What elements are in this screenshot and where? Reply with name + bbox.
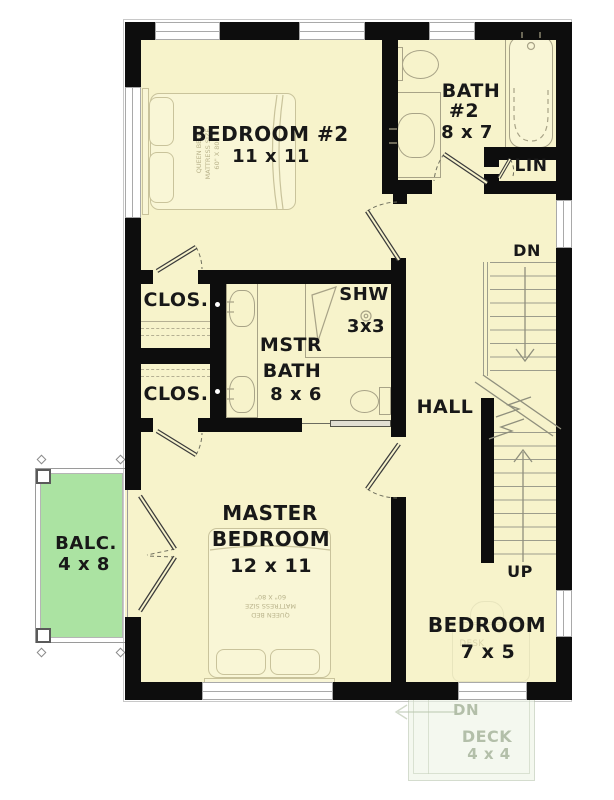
stairs-down-label: DN bbox=[513, 243, 541, 260]
deck-down-arrow bbox=[396, 705, 457, 719]
room-label-bath2: #2 bbox=[449, 102, 479, 122]
tub-faucet-icon bbox=[528, 43, 535, 50]
room-label-master-bath: MSTR bbox=[260, 336, 322, 356]
stair-annotations bbox=[475, 267, 561, 562]
room-dims-deck: 4 x 4 bbox=[467, 747, 511, 763]
stair-break-line bbox=[483, 375, 561, 429]
room-dims-bedroom3: 7 x 5 bbox=[461, 643, 515, 663]
room-label-shower: SHW bbox=[339, 286, 388, 305]
door-arc-closet2 bbox=[196, 433, 202, 455]
sink-faucet-icon bbox=[227, 389, 234, 399]
floor-plan: QUEEN BED MATTRESS SIZE 60" X 80" QUEEN … bbox=[0, 0, 614, 800]
room-dims-master-bedroom: 12 x 11 bbox=[230, 557, 312, 577]
stairs-up-label: UP bbox=[507, 564, 533, 581]
door-arc-closet1 bbox=[196, 247, 202, 269]
room-dims-bedroom2: 11 x 11 bbox=[232, 148, 310, 167]
door-arc-balcony bbox=[147, 549, 175, 555]
shower-head-triangle bbox=[312, 287, 336, 341]
stair-break-zigzag bbox=[489, 419, 524, 439]
room-label-bath2: BATH bbox=[442, 82, 501, 102]
room-dims-bath2: 8 x 7 bbox=[441, 124, 493, 143]
room-label-bedroom2: BEDROOM #2 bbox=[191, 124, 348, 145]
door-arc-linen bbox=[510, 159, 514, 176]
tub-handle-icon bbox=[522, 32, 540, 38]
room-dims-shower: 3x3 bbox=[347, 318, 385, 337]
sink-faucet-icon bbox=[389, 129, 397, 143]
room-dims-master-bath: 8 x 6 bbox=[270, 386, 322, 405]
room-label-master-bedroom: BEDROOM bbox=[212, 529, 330, 550]
room-label-hall: HALL bbox=[417, 398, 474, 418]
room-label-balcony: BALC. bbox=[55, 535, 117, 554]
room-label-closet1: CLOS. bbox=[144, 291, 209, 311]
door-arc-bath2 bbox=[434, 154, 444, 181]
door-arc-master bbox=[367, 489, 397, 498]
room-label-master-bath: BATH bbox=[263, 362, 322, 382]
sink-faucet-icon bbox=[227, 302, 234, 312]
room-label-linen: LIN bbox=[515, 158, 548, 176]
stair-break-line bbox=[475, 382, 553, 436]
door-arc-balcony bbox=[147, 556, 175, 557]
deck-down-label: DN bbox=[453, 703, 479, 719]
tub-inner-dashed bbox=[514, 88, 548, 141]
room-label-deck: DECK bbox=[462, 729, 512, 746]
door-arc-bedroom2 bbox=[367, 202, 397, 211]
door-swing-arcs bbox=[147, 154, 514, 557]
room-label-bedroom3: BEDROOM bbox=[428, 615, 546, 636]
room-dims-balcony: 4 x 8 bbox=[58, 556, 110, 575]
room-label-master-bedroom: MASTER bbox=[222, 503, 318, 524]
room-label-closet2: CLOS. bbox=[144, 385, 209, 405]
